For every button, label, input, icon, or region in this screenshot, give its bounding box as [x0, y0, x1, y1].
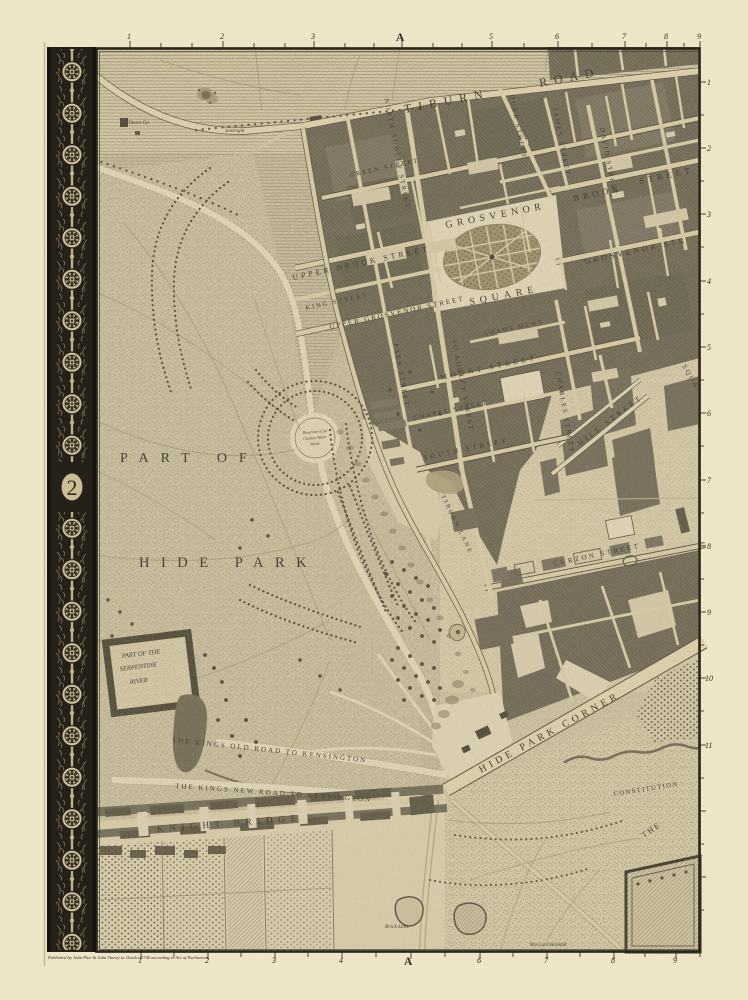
svg-text:A: A: [404, 956, 413, 968]
svg-text:8: 8: [707, 542, 711, 551]
svg-text:1: 1: [127, 32, 131, 41]
svg-text:2: 2: [707, 144, 711, 153]
svg-text:3: 3: [271, 956, 276, 965]
svg-text:4: 4: [707, 277, 711, 286]
svg-text:9: 9: [707, 608, 711, 617]
svg-text:9: 9: [673, 956, 677, 965]
svg-text:2: 2: [67, 475, 78, 500]
svg-text:10: 10: [705, 674, 713, 683]
svg-text:2: 2: [205, 956, 209, 965]
svg-text:6: 6: [707, 409, 711, 418]
svg-text:6: 6: [477, 956, 481, 965]
svg-text:5: 5: [707, 343, 711, 352]
svg-text:11: 11: [705, 741, 712, 750]
svg-text:8: 8: [664, 32, 668, 41]
svg-text:2: 2: [220, 32, 224, 41]
svg-text:5: 5: [489, 32, 493, 41]
svg-text:4: 4: [339, 956, 343, 965]
svg-text:1: 1: [138, 956, 142, 965]
svg-text:1: 1: [707, 78, 711, 87]
svg-text:A: A: [396, 32, 405, 44]
svg-text:6: 6: [555, 32, 559, 41]
svg-text:8: 8: [611, 956, 615, 965]
svg-text:3: 3: [310, 32, 315, 41]
svg-text:3: 3: [706, 210, 711, 219]
svg-text:9: 9: [697, 32, 701, 41]
